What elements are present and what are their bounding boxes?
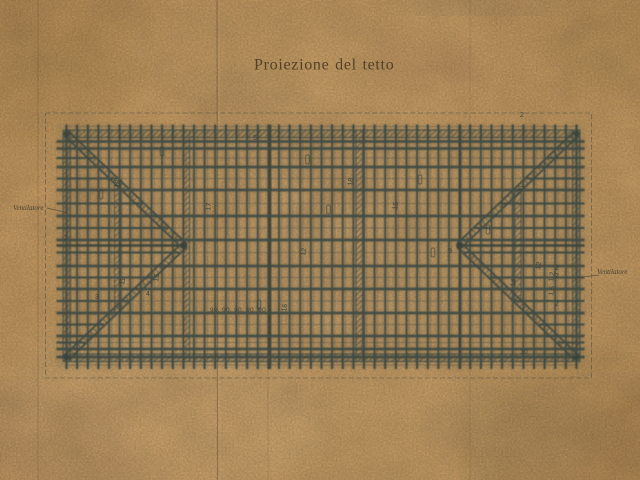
svg-text:90. 90. 90. 90. 90: 90. 90. 90. 90. 90 bbox=[210, 307, 266, 314]
svg-text:Ventilatore: Ventilatore bbox=[13, 204, 43, 212]
svg-text:15: 15 bbox=[153, 273, 161, 282]
svg-text:4: 4 bbox=[146, 291, 150, 298]
svg-text:3: 3 bbox=[95, 294, 99, 301]
svg-text:15: 15 bbox=[392, 201, 400, 210]
svg-text:10: 10 bbox=[520, 349, 528, 356]
svg-text:18: 18 bbox=[347, 177, 355, 186]
svg-text:2: 2 bbox=[555, 301, 559, 308]
svg-text:2: 2 bbox=[555, 265, 559, 272]
svg-text:2: 2 bbox=[64, 235, 68, 242]
svg-text:11: 11 bbox=[517, 184, 525, 192]
svg-text:Ventilatore: Ventilatore bbox=[597, 268, 627, 276]
svg-text:11: 11 bbox=[119, 277, 127, 285]
svg-text:5: 5 bbox=[253, 135, 257, 142]
svg-text:12: 12 bbox=[300, 247, 308, 256]
svg-text:14: 14 bbox=[510, 278, 518, 287]
svg-text:17: 17 bbox=[205, 202, 213, 211]
svg-text:2: 2 bbox=[555, 273, 559, 280]
svg-text:Proiezione del tetto: Proiezione del tetto bbox=[254, 57, 394, 74]
svg-text:12: 12 bbox=[535, 261, 543, 270]
svg-text:16: 16 bbox=[281, 303, 289, 312]
svg-text:18: 18 bbox=[114, 179, 122, 188]
svg-text:9: 9 bbox=[448, 248, 452, 255]
svg-text:2: 2 bbox=[520, 112, 524, 119]
